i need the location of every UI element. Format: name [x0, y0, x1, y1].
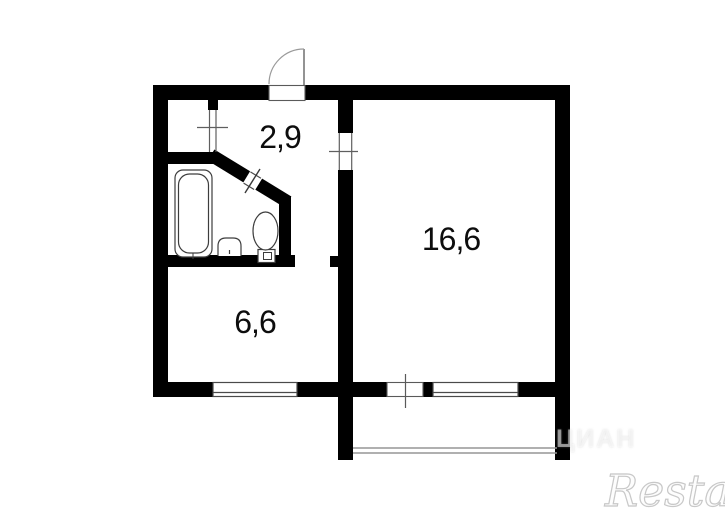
toilet-icon [253, 212, 278, 263]
sink-icon [218, 238, 241, 256]
hall-room-door [329, 133, 358, 170]
hallway-area-label: 2,9 [259, 121, 300, 153]
wall-kitchen-bottom-right [297, 382, 338, 397]
wall-middle-lower [338, 170, 353, 460]
balcony-door [387, 374, 423, 408]
wall-top-right [305, 85, 570, 100]
kitchen-area-label: 6,6 [234, 306, 275, 338]
wall-top-left [153, 85, 269, 100]
wall-room-bottom-right [518, 382, 555, 397]
balcony-rail [353, 448, 557, 453]
toilet-tank-button [264, 253, 272, 260]
wall-left [153, 85, 168, 397]
portal-watermark: ЦИАН [556, 427, 636, 452]
wall-room-bottom-pier [423, 382, 433, 397]
wall-bath-diagonal [211, 155, 288, 202]
wall-right [555, 85, 570, 460]
restate-watermark: Restate [605, 470, 725, 513]
living-room-window [433, 383, 518, 397]
wall-middle-upper [338, 100, 353, 133]
wall-stub-hall [330, 256, 338, 267]
entrance-door-arc [269, 49, 304, 84]
wall-room-bottom-left [353, 382, 387, 397]
toilet-bowl [253, 212, 278, 250]
kitchen-window [213, 383, 297, 397]
niche-door [197, 110, 228, 152]
wall-stub-niche [208, 100, 218, 110]
entrance-door [269, 49, 305, 101]
entrance-opening [269, 86, 305, 101]
bathtub-icon [175, 170, 212, 259]
floorplan-canvas: 2,9 16,6 6,6 ЦИАН Restate [0, 0, 725, 513]
wall-kitchen-bottom-left [153, 382, 213, 397]
living-room-area-label: 16,6 [422, 223, 480, 255]
